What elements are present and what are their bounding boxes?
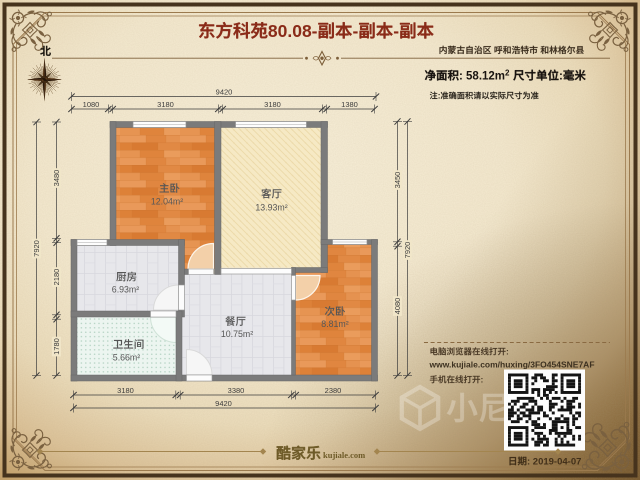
svg-text:3180: 3180 bbox=[157, 100, 174, 109]
svg-text:-: - bbox=[393, 21, 399, 41]
svg-text:13.93m²: 13.93m² bbox=[255, 203, 287, 213]
svg-text:9420: 9420 bbox=[215, 399, 232, 408]
svg-text:80.08-: 80.08- bbox=[268, 21, 318, 41]
svg-text:3180: 3180 bbox=[117, 386, 134, 395]
svg-text:12.04m²: 12.04m² bbox=[151, 197, 183, 207]
svg-text::: : bbox=[506, 347, 509, 357]
svg-text::: : bbox=[559, 71, 563, 83]
svg-text:7920: 7920 bbox=[403, 242, 412, 259]
svg-text:www.kujiale.com/huxing/3FO454S: www.kujiale.com/huxing/3FO454SNE7AF bbox=[429, 360, 595, 370]
svg-text:9420: 9420 bbox=[216, 87, 233, 96]
svg-text:kujiale.com: kujiale.com bbox=[323, 450, 365, 460]
svg-text:2380: 2380 bbox=[325, 386, 342, 395]
svg-text:5.66m²: 5.66m² bbox=[113, 353, 140, 363]
svg-text:3480: 3480 bbox=[52, 170, 61, 187]
svg-text:2: 2 bbox=[505, 69, 510, 78]
svg-text:1380: 1380 bbox=[341, 100, 358, 109]
svg-text::: : bbox=[438, 92, 441, 101]
svg-text:7920: 7920 bbox=[32, 240, 41, 257]
svg-text:1080: 1080 bbox=[83, 100, 100, 109]
svg-text:3450: 3450 bbox=[393, 172, 402, 189]
svg-text:1780: 1780 bbox=[52, 338, 61, 355]
svg-text:: 2019-04-07: : 2019-04-07 bbox=[527, 457, 581, 468]
svg-text:-: - bbox=[353, 21, 359, 41]
svg-text::: : bbox=[481, 375, 484, 385]
svg-text:10.75m²: 10.75m² bbox=[221, 329, 253, 339]
svg-text:3180: 3180 bbox=[264, 100, 281, 109]
svg-text:6.93m²: 6.93m² bbox=[112, 285, 139, 295]
svg-text:2180: 2180 bbox=[52, 269, 61, 286]
svg-text:8.81m²: 8.81m² bbox=[321, 319, 348, 329]
svg-text:3380: 3380 bbox=[228, 386, 245, 395]
svg-text:4080: 4080 bbox=[393, 298, 402, 315]
svg-text:: 58.12m: : 58.12m bbox=[459, 71, 505, 83]
